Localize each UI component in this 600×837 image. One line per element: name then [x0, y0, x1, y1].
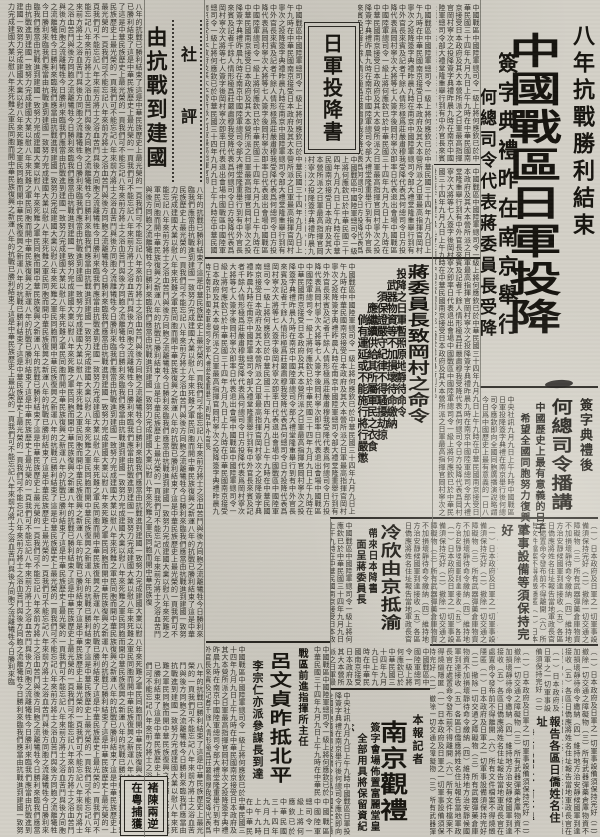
lengxin-body: 中國戰區中國陸軍總司令一級上將何應欽已於中華民國三十四年九月九日上午九時在中華民… — [330, 522, 353, 643]
horizontal-rule — [330, 517, 598, 519]
top-story-body-corner: 中國戰區中國陸軍總司令一級上將何應欽已於中華民國三十四年九月九日上午九時在中華民… — [436, 4, 480, 162]
deck-he-accepts-surrender: 何總司令代表蔣委員長受降 — [479, 88, 499, 350]
editorial-label: 社評 — [175, 46, 199, 170]
ceremony-body: 中央社訊九月九日上午九時中國戰區日軍投降簽字典禮在南京舉行後何總司令應欽即向全國… — [330, 692, 351, 835]
horizontal-rule — [434, 164, 480, 165]
overseas-body-mid: （一）日本政府及日軍之一切軍事設備須保持完好（二）撤除一切交通之障礙物（三）所有… — [430, 648, 530, 835]
lyu-body: 中國戰區中國陸軍總司令一級上將何應欽已於中華民國三十四年九月九日上午九時在中華民… — [206, 646, 246, 834]
order-more-body-left: （一）日本政府及日軍之一切軍事設備須保持完好（二）撤除一切交通之障礙物（三）所有… — [456, 522, 496, 643]
chiang-order-headline: 蔣委員長致岡村之命令 — [402, 264, 434, 428]
editorial-headline: 由抗戰到建國 — [146, 26, 171, 184]
lyu-body-bottom: 中國戰區中國陸軍總司令一級上將何應欽已於中華民國三十四年九月九日上午九時在中華民… — [246, 798, 330, 835]
lyu-headline: 呂文貞昨抵北平 — [263, 652, 294, 796]
top-story-body-left: 中國戰區中國陸軍總司令一級上將何應欽已於中華民國三十四年九月九日上午九時在中華民… — [206, 4, 303, 254]
horizontal-rule — [480, 386, 598, 388]
surrender-doc-box: 日軍投降書 — [304, 22, 360, 154]
order-items-strip: （一）日本政府及日軍之一切軍事設備須保持完好（二）撤除一切交通之障礙物（三）所有… — [403, 522, 455, 643]
broadcast-body: 中央社訊九月九日上午九時中國戰區日軍投降簽字典禮在南京舉行後何總司令應欽即向全國… — [481, 396, 515, 516]
overseas-decks: 報告各區日僑姓名住址 發布處置令前不得離開 — [533, 716, 561, 835]
horizontal-rule — [206, 641, 330, 643]
top-story-body-right: 中國戰區中國陸軍總司令一級上將何應欽已於中華民國三十四年九月九日上午九時在中華民… — [358, 4, 432, 254]
lengxin-headline: 冷欣由京抵渝 — [376, 524, 405, 636]
editorial-label-box: 社評 — [172, 20, 202, 182]
order-more-body-right: （一）日本政府及日軍之一切軍事設備須保持完好（二）撤除一切交通之障礙物（三）所有… — [533, 522, 598, 643]
top-story-body-below-box: 中國戰區中國陸軍總司令一級上將何應欽已於中華民國三十四年九月九日上午九時在中華民… — [305, 156, 358, 255]
ceremony-body-top: 中國戰區中國陸軍總司令一級上將何應欽已於中華民國三十四年九月九日上午九時在中華民… — [330, 648, 430, 686]
surrender-doc-title: 日軍投降書 — [318, 33, 347, 143]
horizontal-rule — [330, 688, 430, 690]
vertical-rule — [480, 0, 481, 518]
lyu-deck: 李宗仁亦派參謀長到達 — [249, 660, 265, 794]
editorial-body: 八年的抗戰已勝利結束了這是中華民族歷史上最光榮的一頁我們可不能忘記八年來前方將士… — [146, 186, 204, 638]
newspaper-page: 八年的抗戰已勝利結束了這是中華民族歷史上最光榮的一頁我們可不能忘記八年來前方將士… — [0, 0, 600, 837]
horizontal-rule — [430, 644, 598, 646]
vertical-rule — [204, 0, 205, 837]
vertical-rule — [330, 518, 331, 837]
lyu-kicker: 戰區前進指揮所主任 — [294, 648, 309, 770]
broadcast-kicker: 簽字典禮後 — [577, 398, 594, 478]
ceremony-headline: 南京觀禮 — [379, 720, 410, 828]
banner-headline: 八年抗戰勝利結束 — [573, 24, 597, 246]
chiang-order-body: 中國戰區中國陸軍總司令一級上將何應欽已於中華民國三十四年九月九日上午九時在中華民… — [206, 263, 356, 515]
broadcast-headline: 何總司令播講 — [545, 398, 575, 518]
deck-signing-ceremony: 簽字典禮昨在南京舉行 — [499, 52, 522, 348]
overseas-body-right: （一）日本政府及日軍之一切軍事設備須保持完好（二）撤除一切交通之障礙物（三）所有… — [562, 648, 598, 835]
mid-strip-body: 中國戰區中國陸軍總司令一級上將何應欽已於中華民國三十四年九月九日上午九時在中華民… — [435, 168, 480, 516]
chiang-order-decks: 投降之日軍暫照原地靜待命令 武器物資等不加損壞待命繳納 須保證嚴守紀律不得騷擾劫… — [358, 268, 406, 512]
ceremony-kicker: 本報記者 — [409, 714, 425, 774]
ceremony-decks: 簽字會場佈置富麗堂皇 全部用具將保留資紀念 — [352, 722, 380, 836]
left-column-text: 八年的抗戰已勝利結束了這是中華民族歷史上最光榮的一頁我們可不能忘記八年來前方將士… — [3, 3, 143, 834]
lengxin-decks: 帶來日本降書 面呈蔣委員長 — [353, 528, 377, 638]
lyu-body-strip: 中國戰區中國陸軍總司令一級上將何應欽已於中華民國三十四年九月九日上午九時在中華民… — [313, 646, 330, 796]
vertical-rule — [144, 0, 145, 837]
overseas-body-topright: （一）日本政府及日軍之一切軍事設備須保持完好（二）撤除一切交通之障礙物（三）所有… — [534, 648, 560, 712]
order-more-decks: 軍事設備等須保持完好 撤除一切交通之障礙物 — [497, 524, 531, 642]
vertical-rule — [432, 165, 433, 645]
